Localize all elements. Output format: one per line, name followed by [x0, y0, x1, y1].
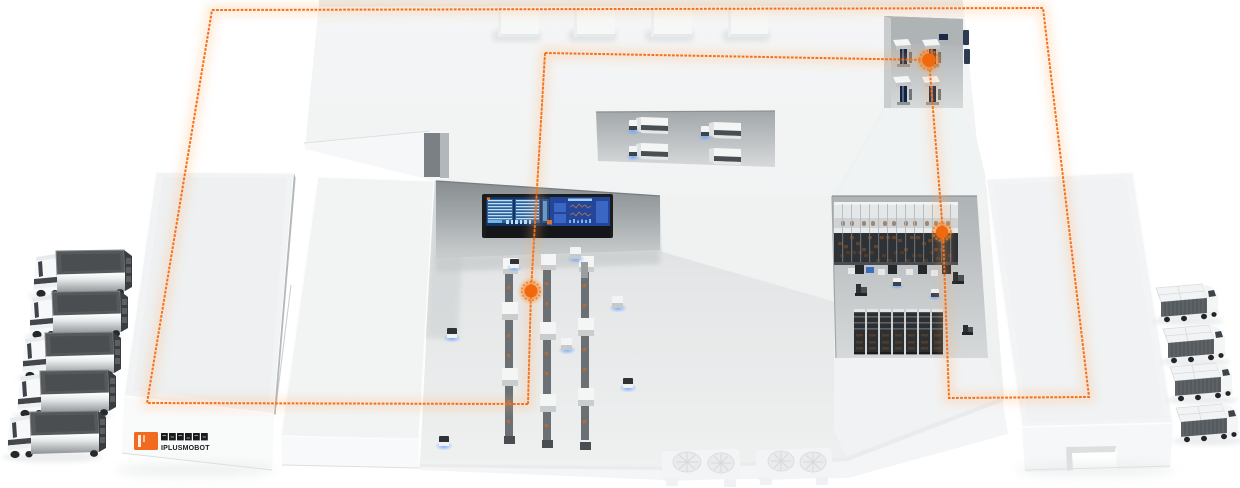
- svg-text:IPLUSMOBOT: IPLUSMOBOT: [161, 445, 210, 452]
